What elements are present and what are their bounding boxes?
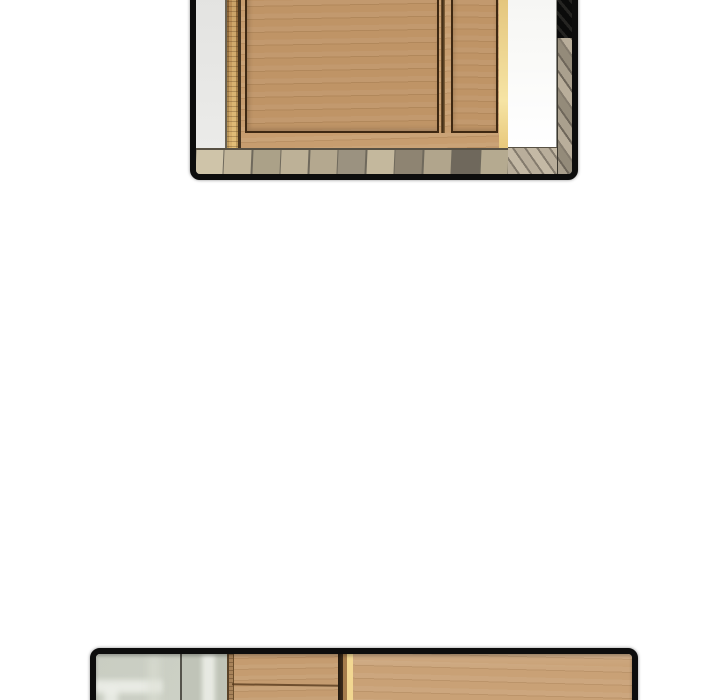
oak-door	[238, 0, 499, 148]
door-stile-divider	[441, 0, 445, 133]
door-frame-jamb	[227, 0, 238, 149]
door-panel-seam-line	[232, 683, 340, 687]
dark-corner-doorway	[557, 0, 572, 38]
corner-floor-diagonal	[557, 38, 572, 174]
floor-plank	[338, 150, 367, 174]
comic-page	[0, 0, 720, 700]
floor-plank	[366, 150, 395, 174]
scene-door-interior	[196, 0, 572, 174]
oak-door-right-section	[353, 654, 632, 700]
glass-highlight-band	[202, 654, 215, 700]
oak-door-left-section	[234, 654, 338, 700]
floor-plank	[395, 150, 424, 174]
floor-plank	[309, 150, 338, 174]
wall-left	[196, 0, 227, 148]
floor-under-right-wall	[508, 147, 557, 174]
wall-right	[508, 0, 557, 147]
floor-plank	[480, 150, 508, 174]
glass-wall-pane-left	[96, 654, 180, 700]
door-recessed-panel-stile	[451, 0, 498, 133]
floor-plank	[423, 150, 452, 174]
floor-plank	[252, 150, 281, 174]
door-recessed-panel-main	[245, 0, 439, 133]
glass-wall-pane-right	[182, 654, 227, 700]
lit-door-edge	[499, 0, 508, 148]
floor-plank	[196, 150, 224, 174]
floor-plank	[224, 150, 253, 174]
floor-plank	[452, 150, 481, 174]
door-frame-edge	[227, 654, 234, 700]
scene-door-closeup	[96, 654, 632, 700]
comic-panel-bottom	[90, 648, 638, 700]
comic-panel-top	[190, 0, 578, 180]
frame-reflection-vertical	[104, 688, 118, 700]
wood-plank-floor	[196, 148, 508, 174]
glass-highlight	[148, 654, 160, 700]
floor-plank	[281, 150, 310, 174]
